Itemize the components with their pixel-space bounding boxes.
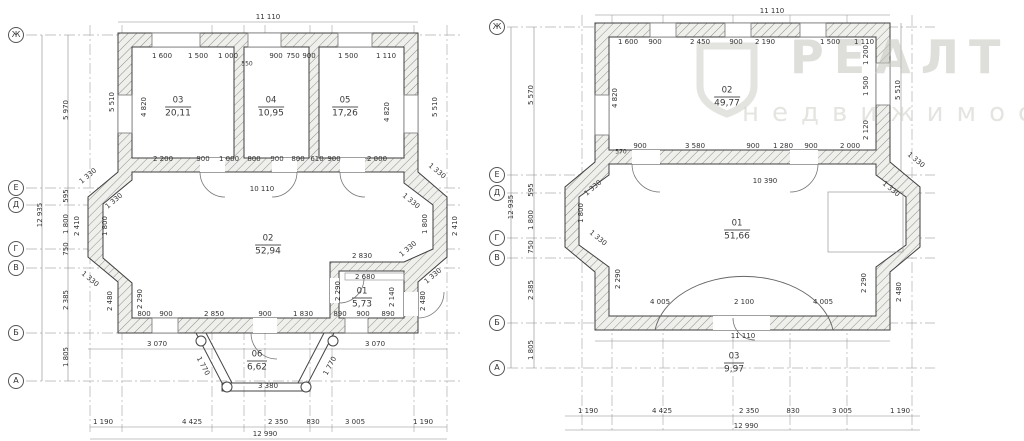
floorplan-drawing bbox=[0, 0, 1024, 441]
porch-columns bbox=[196, 336, 338, 392]
plan-1-porch bbox=[196, 333, 338, 392]
plan-1-walls bbox=[88, 33, 447, 333]
plan-2-walls bbox=[565, 23, 920, 330]
floorplan-canvas: РЕАЛТ недвижимость ЖЕДГВБА11 1101 6001 5… bbox=[0, 0, 1024, 441]
